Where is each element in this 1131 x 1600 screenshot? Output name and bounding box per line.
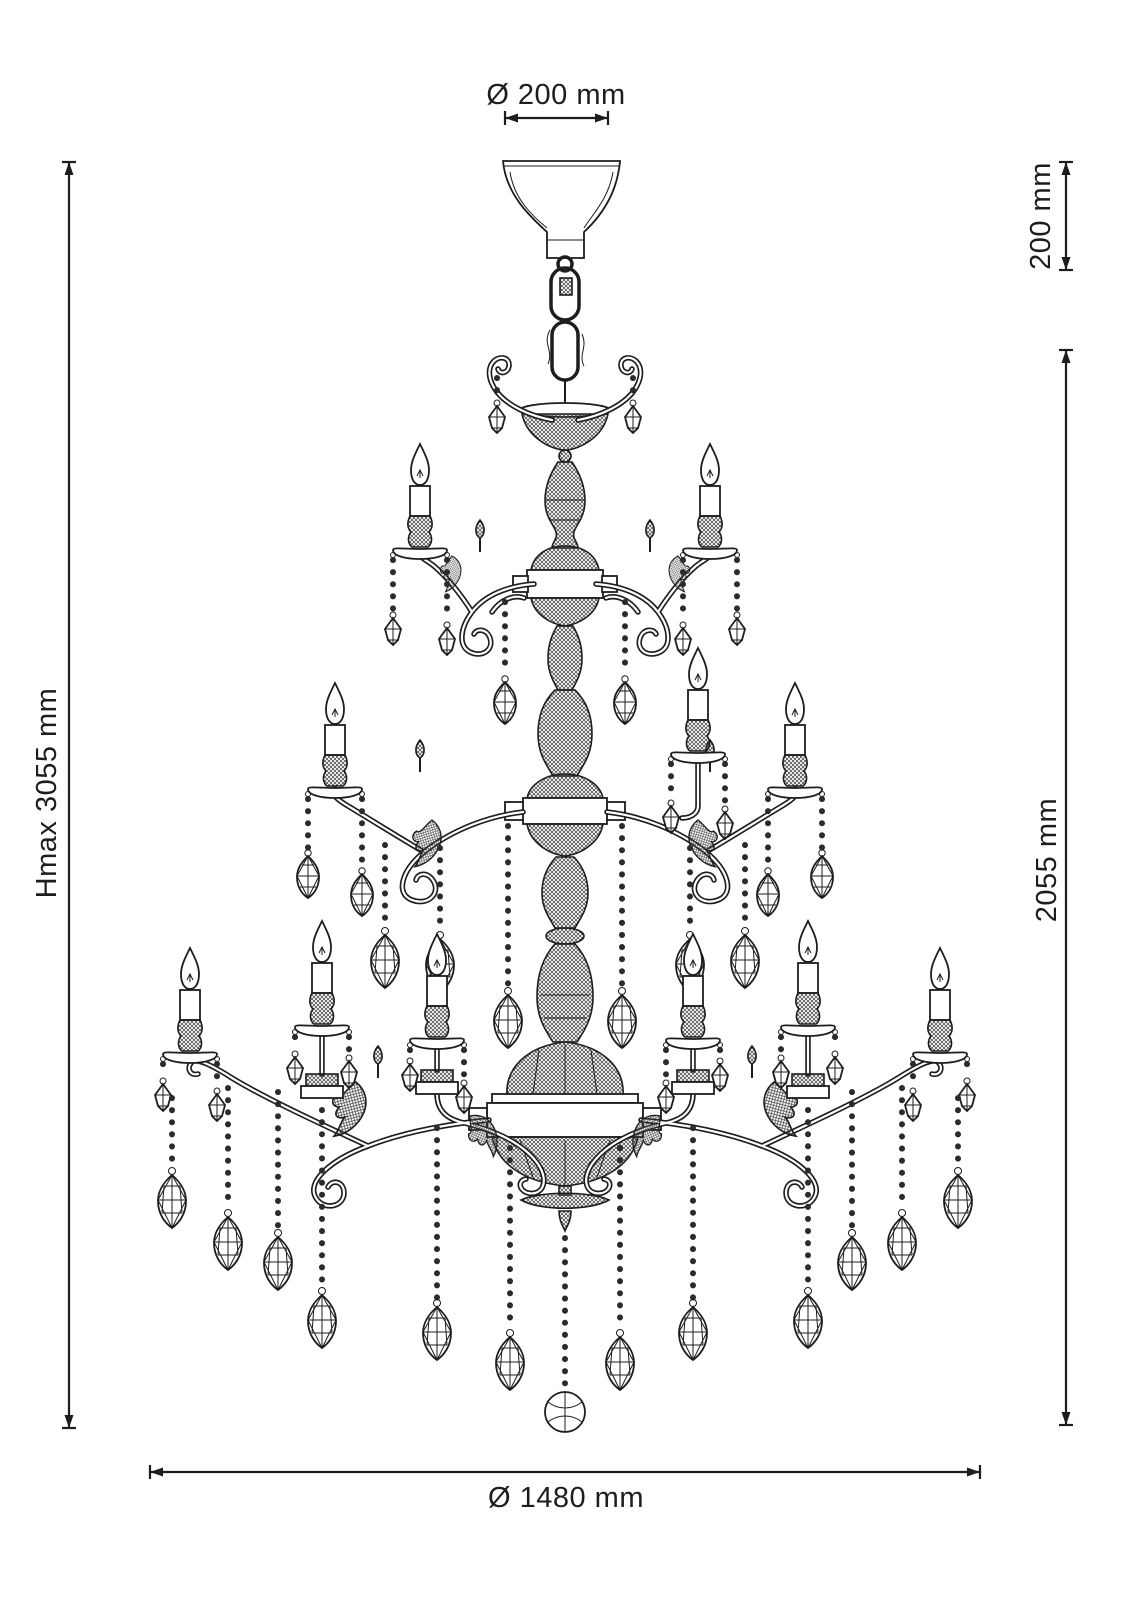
center-column: [487, 161, 643, 1432]
bottom-hub: [487, 1042, 643, 1231]
column-balusters: [523, 462, 607, 1042]
body-height-label: 2055 mm: [1031, 750, 1063, 970]
dim-canopy-diameter: [505, 111, 608, 125]
dim-body-diameter: [150, 1465, 980, 1479]
candle: [669, 648, 728, 763]
center-drop: [545, 1238, 585, 1432]
ceiling-canopy: [503, 161, 620, 258]
suspension-chain: [547, 257, 584, 406]
crystal-pendant: [663, 800, 679, 833]
canopy-diameter-label: Ø 200 mm: [406, 79, 706, 112]
dim-max-height: [62, 162, 76, 1428]
right-arms: [578, 358, 975, 1390]
crown-bowl: [520, 403, 610, 462]
body-diameter-label: Ø 1480 mm: [416, 1482, 716, 1515]
tier2-inner-candle-right: [663, 648, 733, 839]
dim-canopy-height: [1059, 162, 1073, 270]
max-height-label: Hmax 3055 mm: [31, 653, 63, 933]
left-arms: [155, 358, 552, 1390]
crystal-pendant: [717, 806, 733, 839]
drawing-canvas: [0, 0, 1131, 1600]
canopy-height-label: 200 mm: [1025, 136, 1057, 296]
chandelier-dimension-drawing: Ø 200 mm 200 mm Hmax 3055 mm 2055 mm Ø 1…: [0, 0, 1131, 1600]
